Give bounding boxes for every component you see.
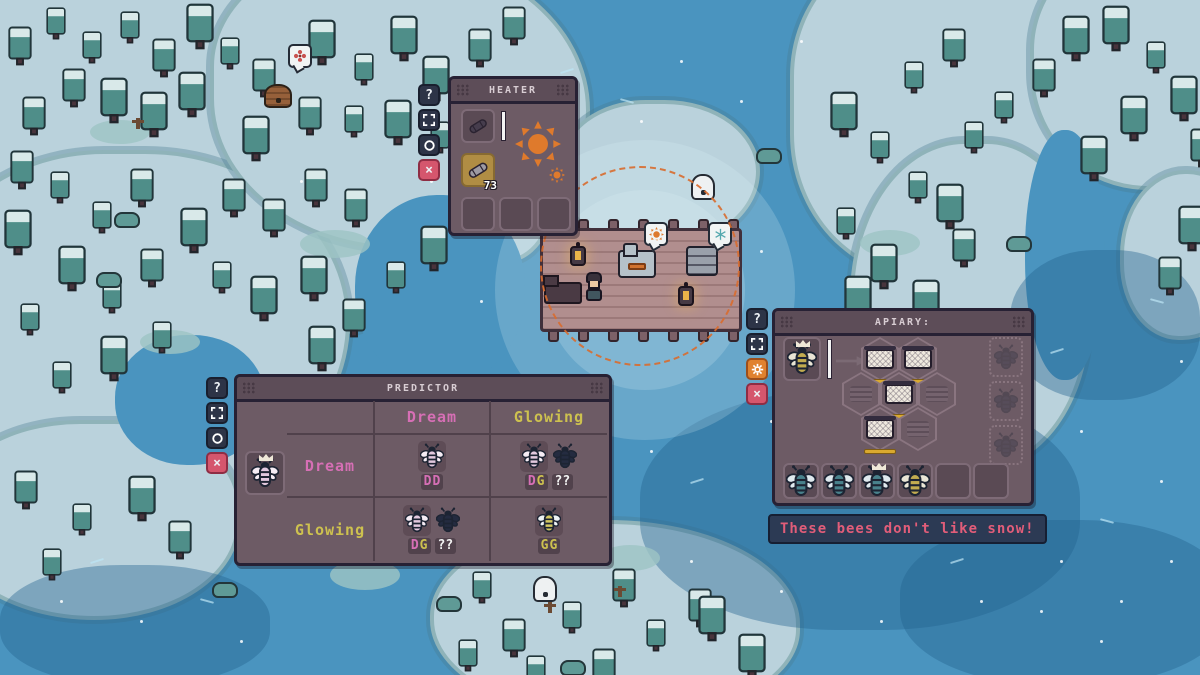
bee-icon xyxy=(994,388,1018,415)
log-item-icon xyxy=(465,160,491,180)
col-header-dream: Dream xyxy=(375,401,491,435)
snow-dot xyxy=(680,60,683,63)
tree xyxy=(468,29,491,62)
apiary-bee-slot[interactable] xyxy=(821,463,857,499)
tree xyxy=(186,4,213,43)
comb-frame-item xyxy=(866,419,894,439)
ghost-bee-slot[interactable] xyxy=(989,425,1023,465)
circle-icon xyxy=(423,139,436,152)
apiary-bee-slot[interactable] xyxy=(783,463,819,499)
tree xyxy=(1158,257,1181,290)
offspring-cell-dg[interactable]: DG ?? xyxy=(491,435,607,498)
snow-dot xyxy=(800,40,803,43)
heater-output-slot[interactable] xyxy=(499,197,533,231)
tree xyxy=(52,361,71,388)
heater-title-bar[interactable]: HEATER xyxy=(451,79,575,104)
snow-dot xyxy=(1180,360,1183,363)
tree xyxy=(140,249,163,282)
tree xyxy=(830,92,857,131)
heater-output-slot[interactable] xyxy=(537,197,571,231)
snow-dot xyxy=(1100,640,1103,643)
tree xyxy=(92,201,111,228)
tree xyxy=(1190,129,1200,162)
dead-sapling xyxy=(618,586,622,597)
expand-button[interactable] xyxy=(206,402,228,424)
tree xyxy=(386,261,405,288)
tree xyxy=(178,72,205,111)
heater-progress-bar xyxy=(501,111,506,141)
apiary-bee-slot[interactable] xyxy=(897,463,933,499)
tree xyxy=(908,171,927,198)
tree xyxy=(342,299,365,332)
tree xyxy=(14,471,37,504)
heater-output-slot[interactable] xyxy=(461,197,495,231)
fuel-count: 73 xyxy=(484,179,497,192)
tree xyxy=(472,571,491,598)
apiary-bee-slot[interactable] xyxy=(859,463,895,499)
predictor-panel: PREDICTOR Dream Glowing Dream DD DG ?? xyxy=(234,374,612,566)
snow-dot xyxy=(690,560,693,563)
tree xyxy=(1032,59,1055,92)
rock xyxy=(114,212,140,228)
tree xyxy=(1178,206,1200,245)
tree xyxy=(420,226,447,265)
tree xyxy=(46,7,65,34)
tree xyxy=(140,92,167,131)
rock xyxy=(560,660,586,675)
tree xyxy=(1146,41,1165,68)
heat-sun-icon xyxy=(515,121,561,167)
bee-icon xyxy=(994,432,1018,459)
snow-dot xyxy=(140,620,143,623)
tree xyxy=(8,27,31,60)
bee-icon xyxy=(824,465,854,498)
dead-sapling xyxy=(548,602,552,613)
comb-frame-item xyxy=(866,349,894,369)
snow-dot xyxy=(740,100,743,103)
tree xyxy=(298,97,321,130)
offspring-cell-gg[interactable]: GG xyxy=(491,498,607,561)
heater-window-buttons: ? × xyxy=(418,84,440,181)
dead-sapling xyxy=(136,118,140,129)
tree xyxy=(646,619,665,646)
log-icon xyxy=(466,117,490,135)
bee-icon xyxy=(787,343,817,376)
tree xyxy=(738,634,765,673)
expand-icon xyxy=(211,407,223,419)
comb-frame-item xyxy=(885,384,913,404)
tree xyxy=(836,207,855,234)
tree xyxy=(62,69,85,102)
tree xyxy=(304,169,327,202)
tree xyxy=(390,16,417,55)
tree xyxy=(502,7,525,40)
apiary-title-bar[interactable]: APIARY: xyxy=(775,311,1031,336)
tree xyxy=(698,596,725,635)
tree xyxy=(220,37,239,64)
tree xyxy=(50,171,69,198)
snow-dot xyxy=(1060,560,1063,563)
tree xyxy=(308,20,335,59)
tree xyxy=(212,261,231,288)
snow-dot xyxy=(480,300,483,303)
empty-comb-icon xyxy=(907,421,929,437)
tree xyxy=(100,78,127,117)
tree xyxy=(1170,76,1197,115)
offspring-cell-dd[interactable]: DD xyxy=(375,435,491,498)
gear-icon xyxy=(751,363,764,376)
breeding-table: Dream Glowing Dream DD DG ?? Glowing xyxy=(287,401,607,561)
bee-icon xyxy=(900,465,930,498)
genes-chip: DG xyxy=(525,474,548,490)
bee-icon xyxy=(405,507,429,534)
track-button[interactable] xyxy=(206,427,228,449)
bee-chip-unknown xyxy=(434,505,462,536)
empty-comb-icon xyxy=(850,386,872,402)
expand-button[interactable] xyxy=(418,109,440,131)
rock xyxy=(96,272,122,288)
apiary-window-buttons: ? × xyxy=(746,308,768,405)
apiary-panel: APIARY: xyxy=(772,308,1034,506)
tree xyxy=(130,169,153,202)
snow-dot xyxy=(300,180,303,183)
predictor-title: PREDICTOR xyxy=(387,383,459,394)
snow-dot xyxy=(1080,430,1083,433)
genes-chip: GG xyxy=(538,538,561,554)
table-corner-cell xyxy=(287,401,375,435)
tree xyxy=(870,131,889,158)
apiary-title: APIARY: xyxy=(875,317,931,328)
predictor-queen-slot[interactable] xyxy=(245,451,285,495)
moss-patch xyxy=(300,230,370,258)
tree xyxy=(1120,96,1147,135)
apiary-hex-cell[interactable] xyxy=(899,407,937,451)
rock xyxy=(756,148,782,164)
predictor-title-bar[interactable]: PREDICTOR xyxy=(237,377,609,402)
apiary-bee-slot[interactable] xyxy=(935,463,971,499)
apiary-bee-slot[interactable] xyxy=(973,463,1009,499)
close-button[interactable]: × xyxy=(206,452,228,474)
tree xyxy=(20,303,39,330)
tree xyxy=(458,639,477,666)
tree xyxy=(994,91,1013,118)
offspring-cell-gd[interactable]: DG ?? xyxy=(375,498,491,561)
mystery-bee-icon xyxy=(553,443,577,470)
snow-dot xyxy=(1120,600,1123,603)
empty-comb-icon xyxy=(926,386,948,402)
apiary-hex-cell[interactable] xyxy=(861,407,899,451)
bee-chip xyxy=(520,441,548,472)
tree xyxy=(936,184,963,223)
expand-icon xyxy=(751,338,763,350)
row-header-glowing: Glowing xyxy=(287,498,375,561)
circle-icon xyxy=(211,432,224,445)
tree xyxy=(1080,136,1107,175)
tree xyxy=(612,569,635,602)
snow-dot xyxy=(1040,610,1043,613)
tree xyxy=(384,100,411,139)
apiary-progress-bar xyxy=(827,339,832,379)
bee-icon xyxy=(786,465,816,498)
mystery-bee-icon xyxy=(436,507,460,534)
genes-chip-unknown: ?? xyxy=(552,474,574,490)
tree xyxy=(592,649,615,675)
rock xyxy=(212,582,238,598)
close-button[interactable]: × xyxy=(418,159,440,181)
bee-chip-unknown xyxy=(551,441,579,472)
tree xyxy=(42,548,61,575)
tree xyxy=(344,189,367,222)
ghost-bee-slot[interactable] xyxy=(989,381,1023,421)
tree xyxy=(1102,6,1129,45)
tree xyxy=(344,105,363,132)
tooltip: These bees don't like snow! xyxy=(768,514,1047,544)
flower-icon xyxy=(293,49,307,63)
bee-chip xyxy=(535,505,563,536)
col-header-glowing: Glowing xyxy=(491,401,607,435)
tree xyxy=(964,121,983,148)
snow-dot xyxy=(240,640,243,643)
tree xyxy=(168,521,191,554)
heater-fuel-input-slot[interactable] xyxy=(461,109,495,143)
game-viewport: ? × HEATER 73 ? × PREDICTOR xyxy=(0,0,1200,675)
tree xyxy=(562,601,581,628)
empty-hive-item[interactable] xyxy=(533,576,557,602)
heater-fuel-stock-slot[interactable]: 73 xyxy=(461,153,495,187)
genes-chip-unknown: ?? xyxy=(435,538,457,554)
tree xyxy=(262,199,285,232)
help-button[interactable]: ? xyxy=(206,377,228,399)
bee-chip xyxy=(418,441,446,472)
apiary-queen-slot[interactable] xyxy=(783,337,821,381)
tree xyxy=(354,53,373,80)
tooltip-text: These bees don't like snow! xyxy=(780,521,1035,537)
heat-sun-small-icon xyxy=(549,167,565,183)
tree xyxy=(942,29,965,62)
tree xyxy=(242,116,269,155)
tree xyxy=(100,336,127,375)
row-header-dream: Dream xyxy=(287,435,375,498)
tree xyxy=(870,244,897,283)
tree xyxy=(222,179,245,212)
tree xyxy=(904,61,923,88)
crown-icon xyxy=(259,454,273,461)
genes-chip: DD xyxy=(421,474,444,490)
wild-beehive[interactable] xyxy=(264,84,292,108)
tree xyxy=(502,619,525,652)
rock xyxy=(436,596,462,612)
crown-icon xyxy=(796,340,810,347)
bee-icon xyxy=(251,458,279,489)
tree xyxy=(180,208,207,247)
snow-dot xyxy=(1160,480,1163,483)
genes-chip: DG xyxy=(408,538,431,554)
tree xyxy=(72,503,91,530)
tree xyxy=(152,321,171,348)
tree xyxy=(300,256,327,295)
bee-icon xyxy=(537,507,561,534)
expand-icon xyxy=(423,114,435,126)
help-button[interactable]: ? xyxy=(746,308,768,330)
tree xyxy=(82,31,101,58)
tree xyxy=(308,326,335,365)
tree xyxy=(58,246,85,285)
tree xyxy=(952,229,975,262)
tree xyxy=(250,276,277,315)
ghost-bee-slot[interactable] xyxy=(989,337,1023,377)
snow-dot xyxy=(1170,560,1173,563)
snow-dot xyxy=(980,600,983,603)
tree xyxy=(4,210,31,249)
hive-status-bubble xyxy=(288,44,312,68)
snow-dot xyxy=(880,620,883,623)
snow-dot xyxy=(60,600,63,603)
bee-icon xyxy=(994,344,1018,371)
comb-frame-item xyxy=(904,349,932,369)
frame-progress-bar xyxy=(864,449,896,454)
help-button[interactable]: ? xyxy=(418,84,440,106)
close-button[interactable]: × xyxy=(746,383,768,405)
tree xyxy=(1062,16,1089,55)
expand-button[interactable] xyxy=(746,333,768,355)
heater-title: HEATER xyxy=(489,85,537,96)
tree xyxy=(526,655,545,675)
rock xyxy=(1006,236,1032,252)
predictor-window-buttons: ? × xyxy=(206,377,228,474)
settings-button[interactable] xyxy=(746,358,768,380)
heater-panel: HEATER 73 xyxy=(448,76,578,236)
bee-icon xyxy=(522,443,546,470)
tree xyxy=(120,11,139,38)
tree xyxy=(128,476,155,515)
bee-chip xyxy=(403,505,431,536)
snow-dot xyxy=(780,590,783,593)
tree xyxy=(152,39,175,72)
track-button[interactable] xyxy=(418,134,440,156)
tree xyxy=(22,97,45,130)
bee-icon xyxy=(420,443,444,470)
snow-dot xyxy=(650,450,653,453)
tree xyxy=(10,151,33,184)
snow-dot xyxy=(640,120,643,123)
